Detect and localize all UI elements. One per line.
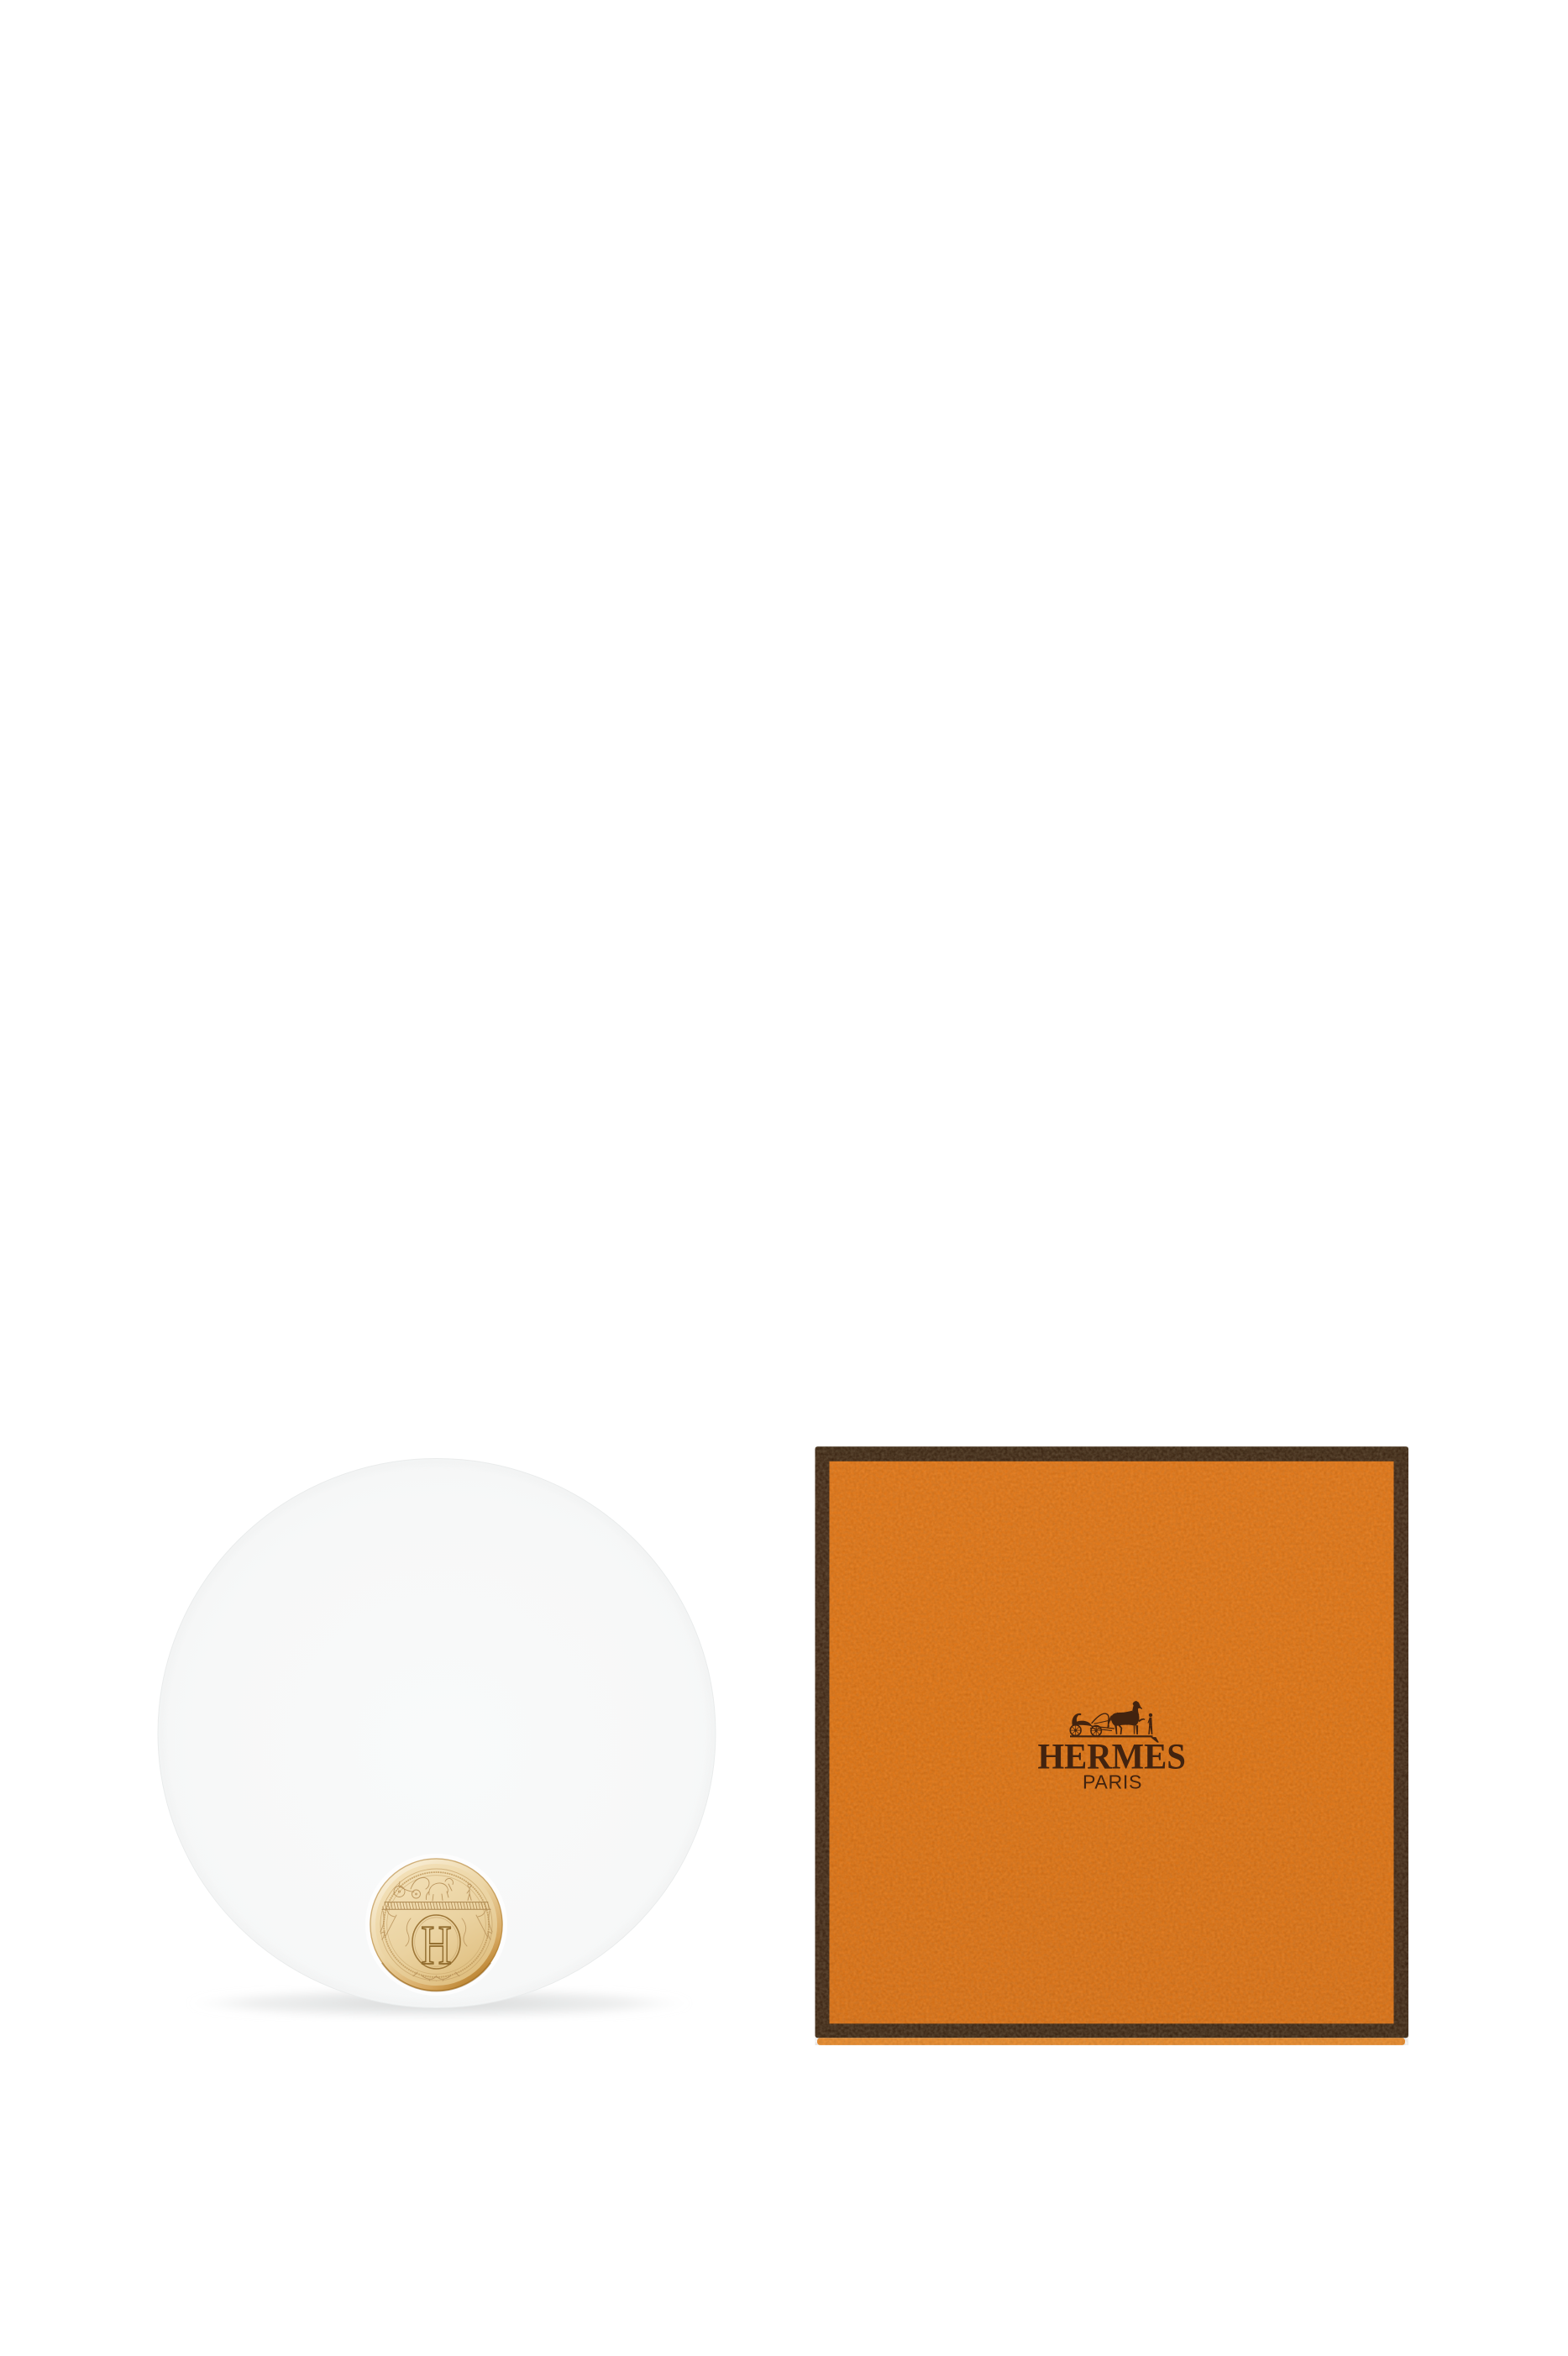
svg-text:PARIS: PARIS: [1083, 1771, 1142, 1792]
svg-text:H: H: [421, 1913, 452, 1976]
